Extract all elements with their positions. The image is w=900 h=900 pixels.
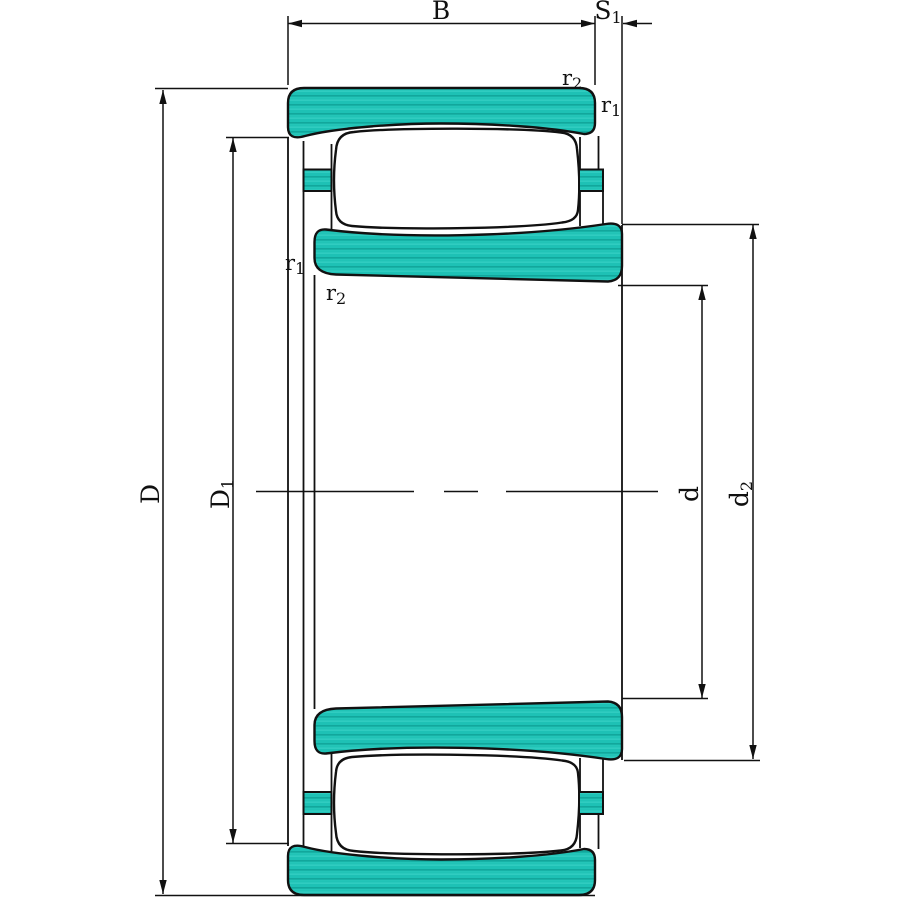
cage-top-right: [579, 170, 603, 192]
bearing-drawing-canvas: B S1 r2 r1 r1 r2 D D1 d d2: [0, 0, 900, 900]
roller-top: [334, 129, 579, 229]
arrow-d2-bottom: [749, 745, 756, 759]
roller-bottom: [334, 755, 579, 855]
label-r2-left: r2: [326, 281, 346, 308]
label-D1: D1: [206, 479, 237, 509]
arrow-D-bottom: [159, 880, 166, 894]
label-d2: d2: [725, 481, 756, 507]
arrow-S1: [623, 20, 637, 28]
arrow-B-right: [581, 20, 595, 28]
label-B: B: [432, 0, 450, 25]
arrow-d-top: [698, 286, 705, 300]
inner-ring-bottom: [315, 702, 623, 760]
arrow-d2-top: [749, 225, 756, 239]
label-r1-top-right: r1: [601, 93, 621, 120]
bearing-cross-section: B S1 r2 r1 r1 r2 D D1 d d2: [0, 0, 900, 900]
cage-bottom-left: [304, 792, 332, 814]
arrow-B-left: [288, 20, 302, 28]
arrow-D-top: [159, 90, 166, 104]
cage-bottom-right: [579, 792, 603, 814]
label-d: d: [675, 486, 704, 502]
cage-top-left: [304, 170, 332, 192]
label-r2-top-right: r2: [562, 66, 582, 93]
label-D: D: [136, 484, 165, 504]
inner-ring-top: [315, 224, 623, 282]
arrow-d-bottom: [698, 684, 705, 698]
arrow-D1-bottom: [229, 829, 236, 843]
arrow-D1-top: [229, 138, 236, 152]
label-r1-left: r1: [285, 251, 305, 278]
label-S1: S1: [594, 0, 621, 27]
